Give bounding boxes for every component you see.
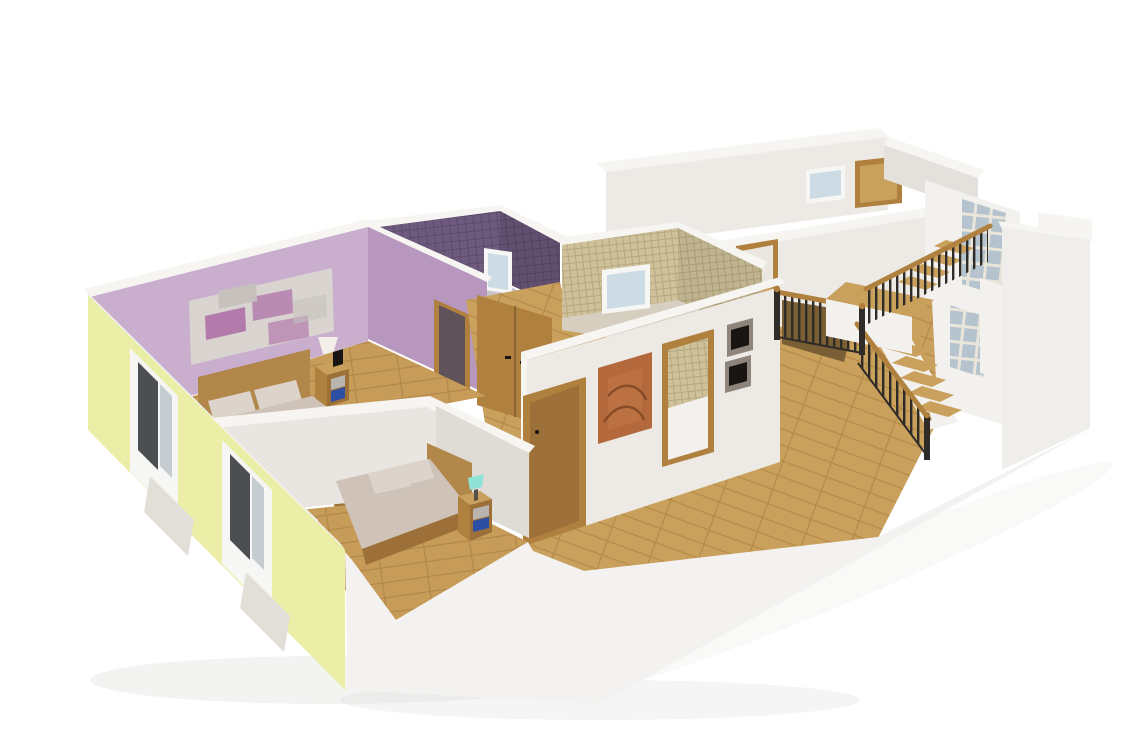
newel-post [859, 305, 865, 355]
window-glass [488, 253, 508, 290]
bathroom-doorway-tile [668, 338, 708, 408]
newel-cap [859, 303, 865, 309]
newel-post [924, 414, 930, 460]
window-glass-light [252, 476, 264, 570]
window-glass-light [160, 384, 172, 478]
newel-post [774, 288, 780, 340]
newel-cap [924, 412, 930, 418]
window-glass [607, 270, 645, 309]
abstract-painting-inner [608, 368, 642, 430]
floorplan-stage [0, 0, 1134, 756]
floorplan-render [0, 0, 1134, 756]
wardrobe-handle [505, 356, 511, 359]
nightstand-photo-frame [333, 349, 343, 367]
door-opening [439, 305, 465, 387]
glass-block-wall-lower [950, 305, 984, 378]
exterior-wall-right [1002, 227, 1090, 470]
hall-door [530, 385, 579, 539]
table-lamp-stem [474, 489, 478, 501]
door-handle [535, 430, 539, 434]
window-glass [810, 170, 841, 199]
newel-cap [774, 286, 780, 292]
